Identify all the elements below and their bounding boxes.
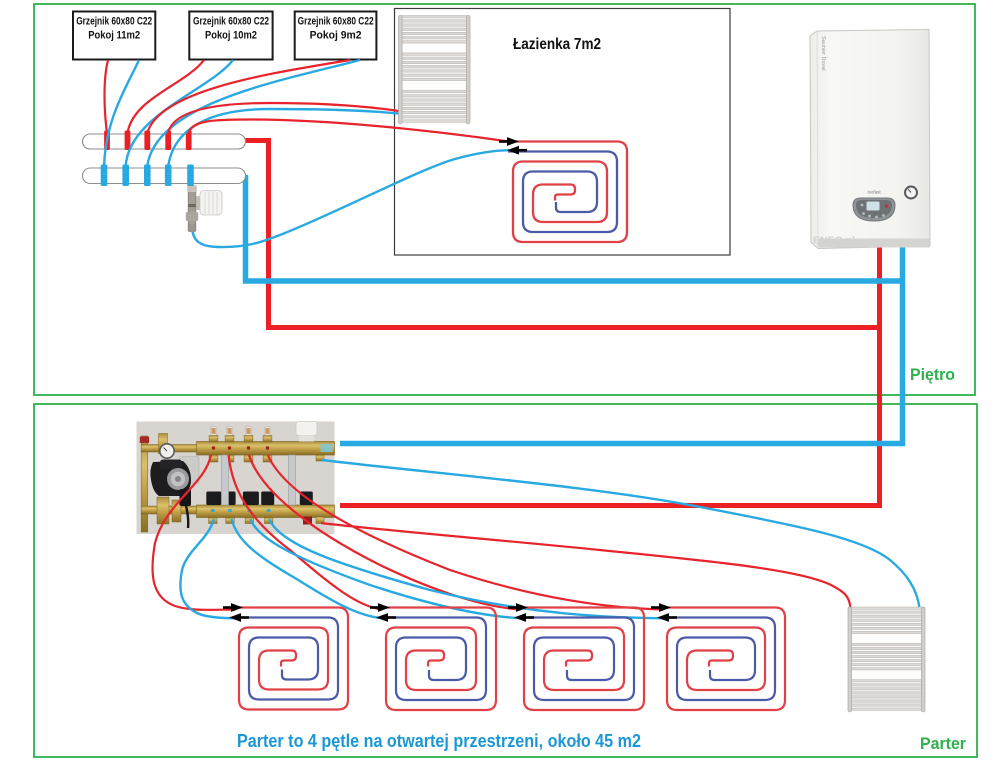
svg-text:Łazienka 7m2: Łazienka 7m2 — [513, 36, 601, 53]
svg-text:Grzejnik 60x80 C22: Grzejnik 60x80 C22 — [298, 16, 374, 28]
svg-text:Grzejnik 60x80 C22: Grzejnik 60x80 C22 — [76, 16, 152, 28]
svg-text:Saunier Duval: Saunier Duval — [820, 36, 826, 71]
svg-text:Pokoj 11m2: Pokoj 11m2 — [88, 30, 140, 42]
svg-text:Parter to 4 pętle na otwartej: Parter to 4 pętle na otwartej przestrzen… — [237, 731, 641, 751]
svg-text:Pokoj 10m2: Pokoj 10m2 — [205, 30, 257, 42]
svg-text:Piętro: Piętro — [910, 365, 955, 384]
svg-text:Isofast: Isofast — [867, 190, 881, 195]
svg-text:Pokoj 9m2: Pokoj 9m2 — [310, 30, 362, 42]
svg-text:Grzejnik 60x80 C22: Grzejnik 60x80 C22 — [193, 16, 269, 28]
svg-text:Parter: Parter — [920, 734, 966, 753]
svg-text:ENEO.pl: ENEO.pl — [813, 235, 855, 247]
